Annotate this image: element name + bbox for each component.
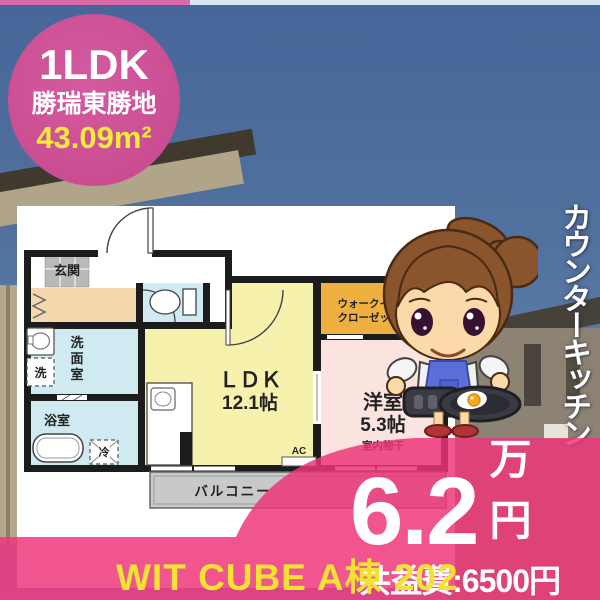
label-washroom-char: 面	[70, 351, 83, 366]
property-name: WIT CUBE A棟 202	[116, 547, 459, 600]
label-balcony: バルコニー	[194, 484, 271, 499]
rent-unit: 万円	[489, 426, 560, 548]
fried-egg-yolk	[468, 394, 480, 406]
closet-door-gap	[327, 335, 363, 339]
kitchen-counter	[147, 383, 192, 465]
label-fridge: 冷	[99, 445, 110, 459]
label-ldk-size: 12.1帖	[222, 391, 278, 414]
sink-icon	[27, 328, 54, 355]
label-ldk: ＬＤＫ	[219, 369, 282, 392]
ldk-door-leaf	[226, 290, 230, 345]
label-genkan: 玄関	[54, 263, 80, 278]
left-building-beam	[6, 285, 10, 545]
label-ac: AC	[292, 446, 306, 457]
label-washroom-char: 室	[70, 367, 83, 382]
badge-location: 勝瑞東勝地	[31, 89, 156, 119]
wall	[24, 322, 232, 329]
bathtub-icon	[33, 434, 83, 462]
toilet-icon	[150, 289, 196, 315]
top-edge-strip-blue	[190, 0, 600, 5]
label-washroom-char: 洗	[70, 335, 83, 350]
room-hallway	[31, 288, 136, 322]
entrance-door-leaf	[148, 208, 153, 253]
bath-door-gap	[57, 395, 87, 400]
badge-layout-type: 1LDK	[39, 44, 149, 86]
top-edge-strip-pink	[0, 0, 190, 5]
label-bath: 浴室	[44, 413, 70, 428]
left-building-wall	[0, 285, 18, 545]
ac-unit-box	[282, 457, 316, 466]
wall	[313, 283, 321, 371]
badge-area: 43.09m²	[36, 121, 151, 155]
rent-amount: 6.2	[350, 468, 477, 556]
entrance-door-arc	[107, 208, 152, 253]
wall	[203, 283, 210, 329]
property-badge: 1LDK 勝瑞東勝地 43.09m²	[8, 14, 180, 186]
wall	[24, 250, 98, 257]
label-washer: 洗	[34, 365, 46, 380]
flyer: 1LDK 勝瑞東勝地 43.09m²	[0, 0, 600, 600]
wall	[152, 250, 232, 257]
